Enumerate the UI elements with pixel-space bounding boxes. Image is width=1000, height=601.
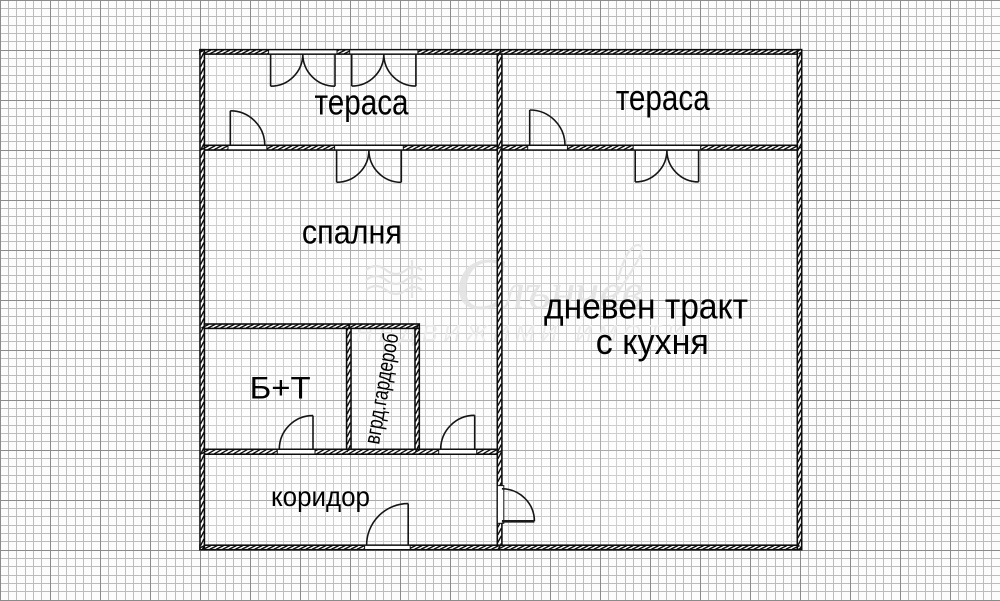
svg-text:с кухня: с кухня <box>596 321 709 362</box>
svg-text:Б+Т: Б+Т <box>250 370 311 406</box>
svg-text:тераса: тераса <box>616 77 711 118</box>
svg-text:спалня: спалня <box>302 214 402 252</box>
svg-text:тераса: тераса <box>315 82 410 123</box>
svg-text:коридор: коридор <box>271 481 370 512</box>
